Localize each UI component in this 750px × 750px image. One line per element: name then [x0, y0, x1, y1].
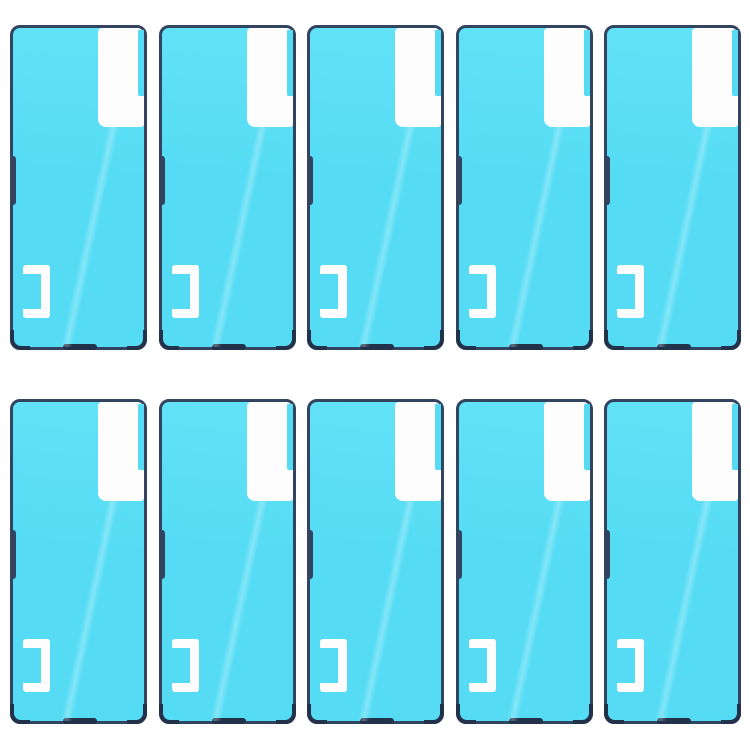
- bracket-cutout: [172, 265, 199, 318]
- bottom-right-corner-accent: [573, 330, 593, 350]
- bottom-port-mark: [657, 344, 691, 350]
- side-button-notch: [10, 156, 16, 205]
- adhesive-sheet: [10, 25, 147, 350]
- adhesive-sheet: [159, 25, 296, 350]
- side-button-notch: [159, 530, 165, 579]
- adhesive-sheet: [604, 25, 741, 350]
- bottom-right-corner-accent: [276, 330, 296, 350]
- bottom-right-corner-accent: [276, 704, 296, 724]
- peel-tab-gap: [138, 404, 144, 470]
- adhesive-sheet-grid: [10, 25, 741, 724]
- bracket-cutout: [23, 639, 50, 692]
- bottom-right-corner-accent: [573, 704, 593, 724]
- bottom-right-corner-accent: [127, 330, 147, 350]
- bottom-port-mark: [212, 344, 246, 350]
- side-button-notch: [604, 156, 610, 205]
- bottom-port-mark: [509, 718, 543, 724]
- peel-tab-cutout: [247, 28, 293, 127]
- bottom-left-corner-accent: [456, 330, 476, 350]
- side-button-notch: [604, 530, 610, 579]
- bottom-left-corner-accent: [10, 330, 30, 350]
- side-button-notch: [456, 156, 462, 205]
- bracket-cutout: [23, 265, 50, 318]
- side-button-notch: [10, 530, 16, 579]
- bottom-port-mark: [657, 718, 691, 724]
- adhesive-sheet: [456, 399, 593, 724]
- peel-tab-gap: [435, 404, 441, 470]
- peel-tab-gap: [435, 30, 441, 96]
- bracket-cutout: [320, 265, 347, 318]
- peel-tab-gap: [732, 30, 738, 96]
- peel-tab-gap: [138, 30, 144, 96]
- peel-tab-gap: [584, 404, 590, 470]
- bottom-left-corner-accent: [604, 704, 624, 724]
- bottom-left-corner-accent: [604, 330, 624, 350]
- peel-tab-gap: [732, 404, 738, 470]
- side-button-notch: [159, 156, 165, 205]
- bracket-cutout: [617, 265, 644, 318]
- bottom-left-corner-accent: [10, 704, 30, 724]
- peel-tab-cutout: [544, 402, 590, 501]
- side-button-notch: [307, 156, 313, 205]
- bottom-port-mark: [360, 344, 394, 350]
- adhesive-sheet: [307, 25, 444, 350]
- bottom-left-corner-accent: [307, 704, 327, 724]
- peel-tab-gap: [287, 404, 293, 470]
- bottom-right-corner-accent: [127, 704, 147, 724]
- peel-tab-cutout: [247, 402, 293, 501]
- peel-tab-gap: [287, 30, 293, 96]
- peel-tab-cutout: [544, 28, 590, 127]
- side-button-notch: [456, 530, 462, 579]
- bottom-right-corner-accent: [721, 330, 741, 350]
- adhesive-sheet: [604, 399, 741, 724]
- bottom-port-mark: [212, 718, 246, 724]
- bracket-cutout: [320, 639, 347, 692]
- bottom-left-corner-accent: [456, 704, 476, 724]
- adhesive-sheet: [456, 25, 593, 350]
- side-button-notch: [307, 530, 313, 579]
- bracket-cutout: [469, 265, 496, 318]
- peel-tab-gap: [584, 30, 590, 96]
- bracket-cutout: [172, 639, 199, 692]
- adhesive-sheet: [10, 399, 147, 724]
- bottom-port-mark: [63, 718, 97, 724]
- bottom-left-corner-accent: [307, 330, 327, 350]
- bottom-port-mark: [360, 718, 394, 724]
- bottom-right-corner-accent: [424, 330, 444, 350]
- bottom-port-mark: [509, 344, 543, 350]
- bracket-cutout: [617, 639, 644, 692]
- bottom-left-corner-accent: [159, 330, 179, 350]
- bracket-cutout: [469, 639, 496, 692]
- adhesive-sheet: [307, 399, 444, 724]
- bottom-right-corner-accent: [721, 704, 741, 724]
- adhesive-sheet: [159, 399, 296, 724]
- bottom-right-corner-accent: [424, 704, 444, 724]
- product-photo-canvas: [0, 0, 750, 750]
- bottom-left-corner-accent: [159, 704, 179, 724]
- bottom-port-mark: [63, 344, 97, 350]
